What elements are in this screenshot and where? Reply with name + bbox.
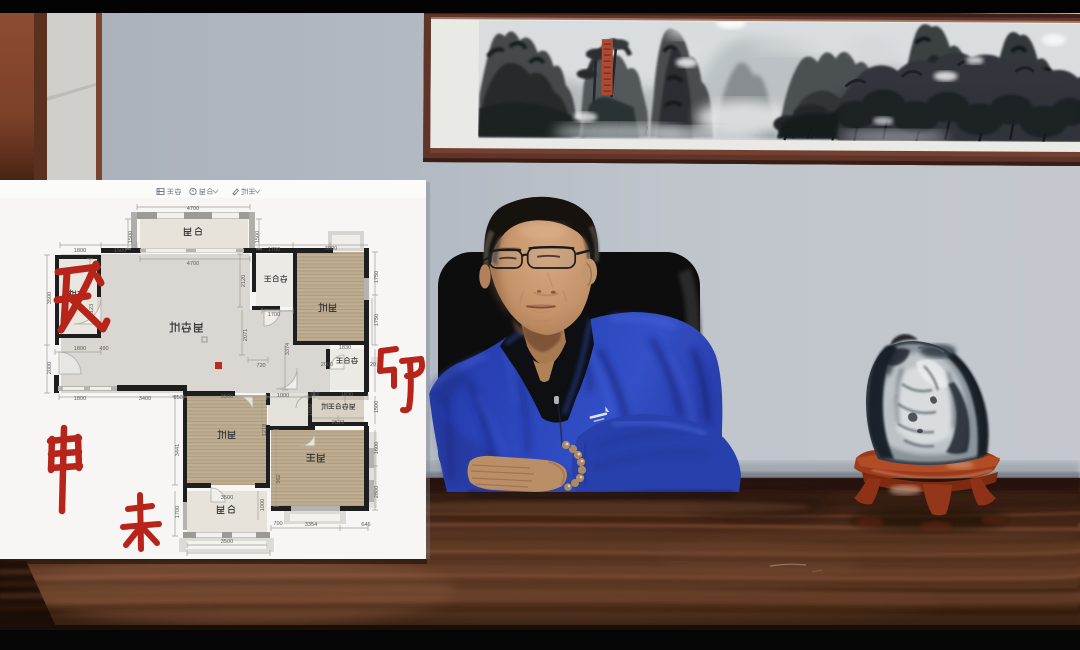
svg-text:1800: 1800: [74, 396, 86, 402]
svg-text:3400: 3400: [139, 396, 151, 402]
svg-text:1800: 1800: [74, 346, 86, 352]
svg-text:20: 20: [370, 362, 376, 368]
svg-text:3500: 3500: [221, 495, 233, 501]
svg-text:3500: 3500: [47, 292, 53, 304]
svg-text:1600: 1600: [374, 442, 380, 454]
svg-text:4700: 4700: [187, 206, 199, 212]
svg-text:720: 720: [256, 363, 265, 369]
svg-text:1218: 1218: [262, 424, 268, 436]
svg-text:646: 646: [361, 522, 370, 528]
svg-text:1500: 1500: [255, 231, 261, 243]
svg-text:3374: 3374: [285, 343, 291, 355]
svg-text:1830: 1830: [341, 392, 353, 398]
svg-text:1700: 1700: [268, 312, 280, 318]
svg-text:2120: 2120: [241, 275, 247, 287]
svg-text:1000: 1000: [277, 393, 289, 399]
svg-text:490: 490: [99, 346, 108, 352]
svg-text:700: 700: [273, 521, 282, 527]
svg-text:650: 650: [173, 395, 182, 401]
svg-text:1500: 1500: [374, 401, 380, 413]
svg-text:3500: 3500: [221, 539, 233, 545]
svg-text:3354: 3354: [305, 522, 317, 528]
svg-text:1750: 1750: [374, 314, 380, 326]
svg-text:2522: 2522: [332, 420, 344, 426]
svg-text:3441: 3441: [175, 444, 181, 456]
svg-text:1500: 1500: [128, 231, 134, 243]
svg-text:1700: 1700: [268, 247, 280, 253]
svg-text:2071: 2071: [243, 329, 249, 341]
svg-text:1000: 1000: [260, 499, 266, 511]
svg-text:3000: 3000: [325, 246, 337, 252]
svg-text:1750: 1750: [374, 271, 380, 283]
svg-text:962: 962: [276, 474, 282, 483]
svg-text:1800: 1800: [74, 248, 86, 254]
svg-text:2000: 2000: [47, 362, 53, 374]
svg-text:2800: 2800: [374, 486, 380, 498]
svg-text:692: 692: [310, 392, 319, 398]
svg-text:1700: 1700: [175, 506, 181, 518]
svg-text:4700: 4700: [187, 261, 199, 267]
svg-text:1830: 1830: [339, 345, 351, 351]
svg-text:1500: 1500: [114, 248, 126, 254]
svg-text:1592: 1592: [308, 404, 314, 416]
svg-text:3500: 3500: [221, 394, 233, 400]
svg-text:2000: 2000: [321, 362, 333, 368]
